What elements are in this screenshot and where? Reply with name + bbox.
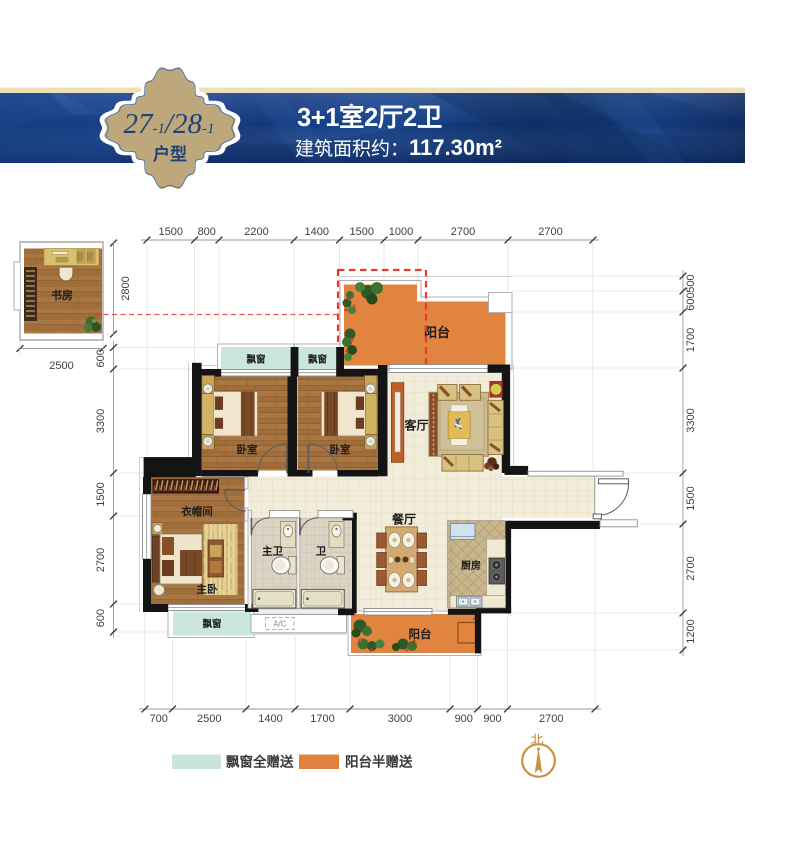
- svg-text:1500: 1500: [350, 226, 374, 238]
- svg-text:1000: 1000: [389, 226, 413, 238]
- svg-text:3300: 3300: [95, 409, 107, 433]
- svg-text:2700: 2700: [95, 548, 107, 572]
- svg-text:600: 600: [95, 609, 107, 627]
- svg-text:2800: 2800: [120, 276, 132, 300]
- svg-text:700: 700: [150, 713, 168, 725]
- svg-text:阳台半赠送: 阳台半赠送: [345, 754, 413, 770]
- svg-text:900: 900: [483, 713, 501, 725]
- svg-text:3+1室2厅2卫: 3+1室2厅2卫: [297, 103, 442, 132]
- svg-text:主卧: 主卧: [197, 583, 218, 596]
- svg-text:1700: 1700: [685, 328, 697, 352]
- svg-text:600: 600: [685, 292, 697, 310]
- svg-text:厨房: 厨房: [461, 559, 481, 572]
- svg-text:900: 900: [455, 713, 473, 725]
- svg-text:1200: 1200: [685, 619, 697, 643]
- svg-text:书房: 书房: [51, 288, 73, 302]
- svg-text:主卫: 主卫: [262, 545, 283, 558]
- svg-text:1400: 1400: [258, 713, 282, 725]
- svg-text:卫: 卫: [316, 546, 327, 558]
- svg-text:1500: 1500: [685, 486, 697, 510]
- svg-text:27-1/28-1: 27-1/28-1: [123, 108, 214, 140]
- svg-text:2700: 2700: [538, 226, 562, 238]
- svg-text:3000: 3000: [388, 713, 412, 725]
- svg-text:阳台: 阳台: [409, 627, 432, 641]
- svg-text:户型: 户型: [153, 144, 187, 164]
- svg-text:2700: 2700: [451, 226, 475, 238]
- svg-text:餐厅: 餐厅: [392, 512, 416, 527]
- svg-text:客厅: 客厅: [403, 418, 428, 433]
- svg-text:飘窗: 飘窗: [307, 354, 328, 366]
- svg-text:1400: 1400: [305, 226, 329, 238]
- svg-text:500: 500: [685, 274, 697, 292]
- svg-text:2700: 2700: [685, 556, 697, 580]
- svg-text:卧室: 卧室: [237, 443, 258, 456]
- svg-text:衣帽间: 衣帽间: [181, 505, 213, 518]
- svg-text:800: 800: [198, 226, 216, 238]
- svg-text:阳台: 阳台: [424, 325, 450, 340]
- svg-text:1500: 1500: [95, 482, 107, 506]
- svg-text:卧室: 卧室: [330, 443, 351, 456]
- svg-text:2500: 2500: [49, 360, 73, 372]
- svg-text:建筑面积约：117.30m²: 建筑面积约：117.30m²: [295, 135, 502, 160]
- svg-text:飘窗: 飘窗: [245, 354, 266, 366]
- svg-text:600: 600: [95, 349, 107, 367]
- svg-text:2200: 2200: [244, 226, 268, 238]
- svg-text:1700: 1700: [310, 713, 334, 725]
- svg-text:2700: 2700: [539, 713, 563, 725]
- svg-text:3300: 3300: [685, 408, 697, 432]
- svg-text:1500: 1500: [159, 226, 183, 238]
- svg-text:飘窗全赠送: 飘窗全赠送: [226, 754, 294, 770]
- svg-text:飘窗: 飘窗: [201, 618, 222, 630]
- svg-text:A/C: A/C: [273, 620, 287, 629]
- svg-text:2500: 2500: [197, 713, 221, 725]
